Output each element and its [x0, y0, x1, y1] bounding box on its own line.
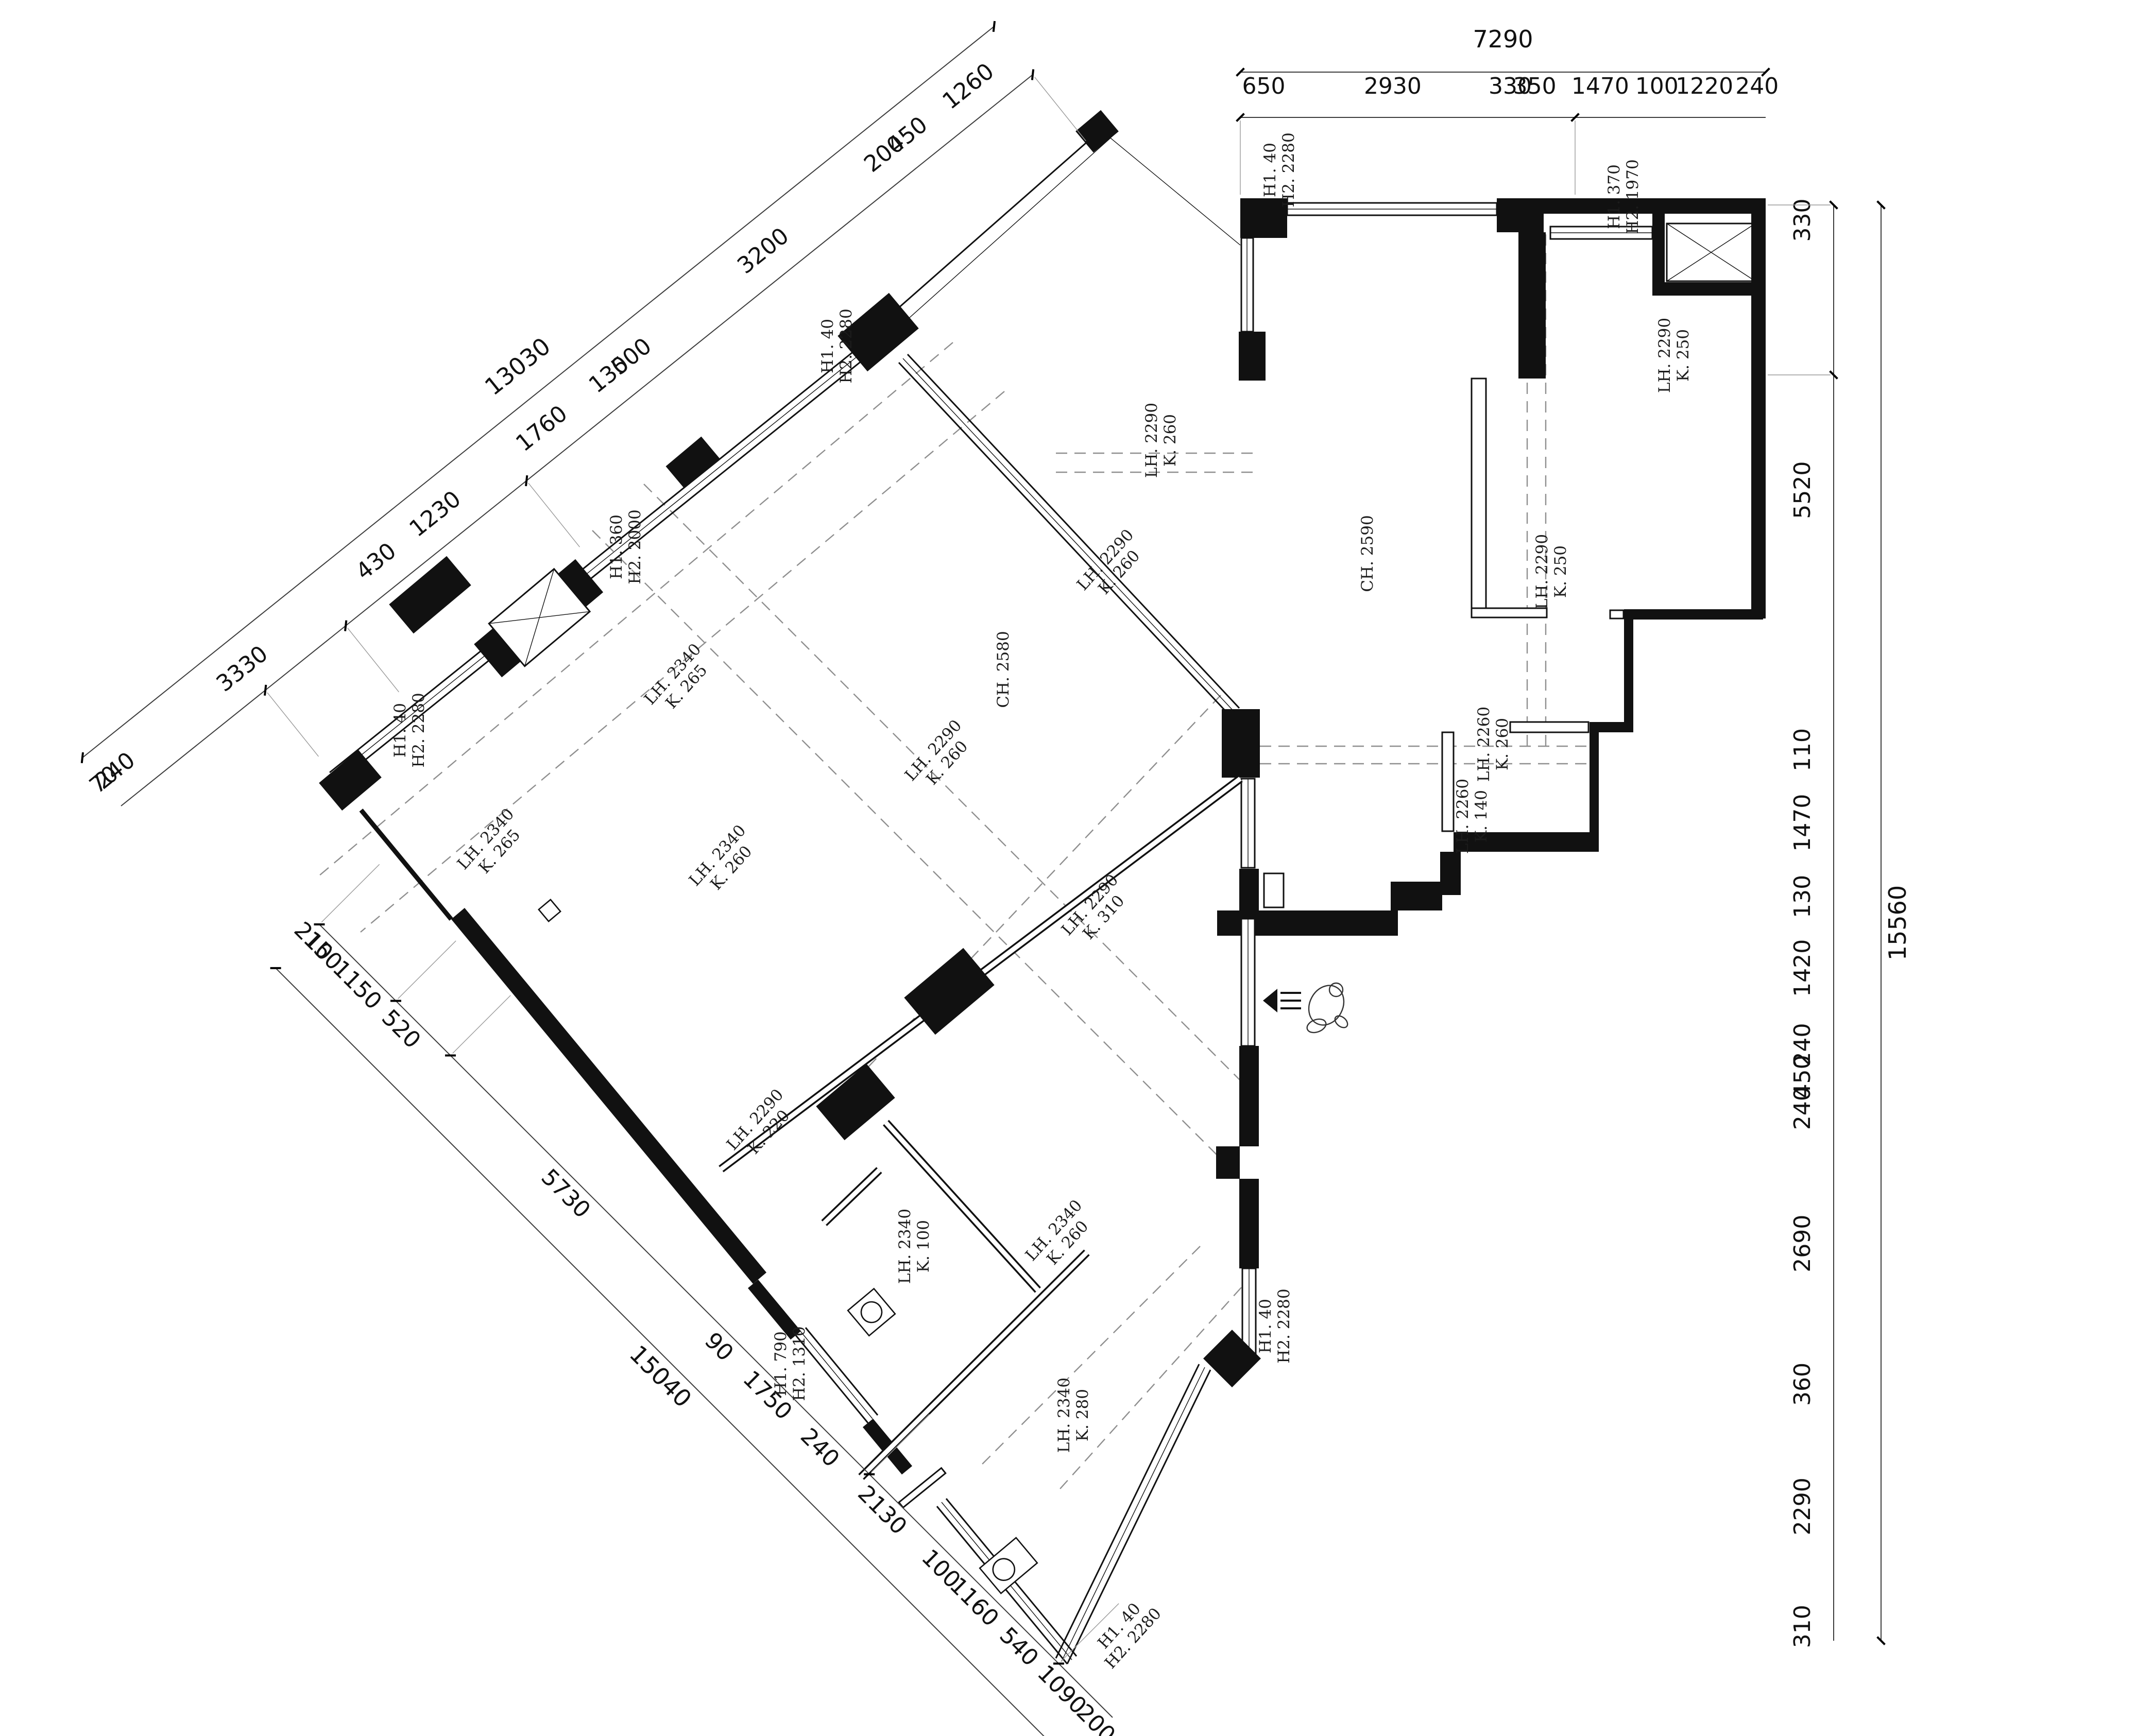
svg-text:H1. 790: H1. 790 — [772, 1331, 790, 1396]
wc-fixture-icon — [848, 1288, 895, 1335]
bath-left-partition — [1442, 732, 1454, 831]
svg-text:H1. 370: H1. 370 — [1605, 164, 1624, 229]
label-nw-elevator-window: H1. 360H2. 2000 — [607, 509, 644, 584]
label-room-e-upper: LH. 2290K. 250 — [1655, 318, 1693, 393]
svg-text:H2. 1970: H2. 1970 — [1624, 159, 1642, 234]
ne-facade-window-wall — [899, 354, 1239, 716]
west-corner-column — [319, 750, 382, 811]
dim-extension-line — [398, 941, 456, 999]
partition-vertical — [1472, 379, 1486, 608]
svg-text:LH. 2340: LH. 2340 — [1055, 1378, 1073, 1453]
dimension-value: 240 — [1789, 1087, 1816, 1130]
label-se-window: H1. 40H2. 2280 — [1087, 1592, 1165, 1672]
dimension-overall-value: 15560 — [1884, 885, 1911, 960]
svg-text:LH. 2290: LH. 2290 — [1142, 403, 1161, 478]
svg-text:H2. 2280: H2. 2280 — [1275, 1288, 1293, 1363]
step-wall-a — [1440, 852, 1461, 895]
svg-text:H2. 2280: H2. 2280 — [409, 693, 428, 767]
svg-text:K. 260: K. 260 — [1161, 414, 1180, 467]
right-outer-wall — [1751, 214, 1766, 618]
dimension-value: 360 — [1789, 1363, 1816, 1406]
dim-extension-line — [528, 483, 579, 547]
entry-symbol — [1263, 979, 1351, 1035]
dimension-value: 2930 — [1364, 73, 1422, 99]
svg-text:K. 250: K. 250 — [1674, 329, 1693, 382]
room-e-bottom-wall — [1624, 609, 1763, 620]
svg-text:H1. 40: H1. 40 — [1261, 143, 1279, 197]
bath-jog-wall — [1590, 722, 1633, 732]
entry-wall-a — [1239, 869, 1259, 918]
dim-extension-line — [267, 693, 318, 757]
dim-tick — [1032, 70, 1033, 80]
svg-text:H1. 40: H1. 40 — [391, 703, 409, 758]
bath-right-wall-lower — [1590, 732, 1599, 835]
svg-text:H2. 1310: H2. 1310 — [790, 1326, 809, 1401]
label-nw-facade-window: H1. 40H2. 2280 — [391, 693, 428, 767]
svg-text:K. 140: K. 140 — [1472, 790, 1491, 843]
dimension-overall-value: 15040 — [624, 1340, 697, 1413]
dim-chain-sw: 2101501150520573090175024021301001160540… — [270, 864, 2153, 1736]
label-great-room: CH. 2580 — [994, 631, 1013, 708]
dim-chain-nw: 1260450200320050013017601230430333024070… — [0, 21, 1086, 1736]
nw-facade-column — [389, 556, 471, 634]
svg-text:H1. 360: H1. 360 — [607, 514, 626, 579]
dim-tick — [526, 475, 527, 486]
dim-extension-line — [348, 628, 399, 692]
dim-chain-top: 6502930330350147010012202407290 — [1237, 25, 2153, 195]
step-wall-c — [1341, 910, 1398, 936]
dimension-value: 3330 — [212, 641, 273, 697]
nw-elevator — [470, 555, 607, 682]
dim-overall-line — [276, 968, 1069, 1736]
svg-text:LH. 2290: LH. 2290 — [1533, 534, 1551, 609]
label-beam-west: LH. 2340K. 265 — [454, 805, 532, 886]
svg-text:H2. 2280: H2. 2280 — [837, 308, 856, 383]
dimension-value: 430 — [351, 538, 401, 585]
dimension-value: 2690 — [1789, 1215, 1816, 1273]
svg-text:K. 260: K. 260 — [1493, 718, 1512, 770]
divider-wall — [1518, 232, 1546, 379]
dimension-chains: 6502930330350147010012202407290 33055201… — [0, 21, 2153, 1736]
svg-text:K. 100: K. 100 — [914, 1220, 933, 1273]
dimension-value: 90 — [699, 1328, 739, 1367]
svg-text:CH. 2590: CH. 2590 — [1358, 515, 1377, 592]
interior-column-b — [816, 1064, 895, 1140]
dimension-overall-value: 13030 — [480, 332, 556, 401]
dim-extension-line — [1035, 77, 1086, 141]
bath-right-wall — [1624, 620, 1633, 732]
dimension-value: 650 — [1242, 73, 1285, 99]
dim-tick — [82, 752, 83, 763]
bath-top-partition — [1510, 722, 1588, 732]
dim-tick — [345, 621, 346, 631]
wall-fixture — [539, 900, 560, 921]
label-beam-center-b: LH. 2290K. 260 — [901, 716, 979, 797]
svg-text:LH. 2290: LH. 2290 — [1655, 318, 1674, 393]
left-wall-column — [1239, 332, 1266, 381]
dimension-value: 2290 — [1789, 1477, 1816, 1535]
entry-wall-c — [1239, 1179, 1259, 1268]
sw-thick-wall — [451, 908, 766, 1284]
step-wall-b — [1391, 882, 1442, 910]
label-beam-center-a: LH. 2290K. 260 — [1073, 526, 1151, 607]
entry-column — [1222, 709, 1260, 778]
dimension-value: 240 — [1735, 73, 1779, 99]
dim-tick — [265, 685, 266, 696]
svg-text:LH. 2260: LH. 2260 — [1475, 707, 1493, 782]
dimension-value: 240 — [795, 1423, 844, 1472]
floor-plan-canvas: 6502930330350147010012202407290 33055201… — [0, 0, 2153, 1736]
top-column — [1497, 198, 1544, 232]
dimension-overall-value: 7290 — [1473, 25, 1533, 53]
dimension-value: 1260 — [937, 58, 999, 115]
label-top-window: H1. 40H2. 2280 — [1261, 132, 1298, 207]
svg-text:H2. 2000: H2. 2000 — [626, 509, 644, 584]
door-leaf — [1264, 873, 1284, 907]
label-hallway: LH. 2260K. 260 — [1475, 707, 1512, 782]
svg-text:K. 250: K. 250 — [1551, 545, 1570, 598]
label-hall-junction: LH. 2290K. 260 — [1142, 403, 1180, 478]
label-bathroom: LH. 2260K. 140 — [1454, 779, 1491, 854]
dimension-value: 350 — [1513, 73, 1557, 99]
corridor-bottom-wall — [1217, 910, 1341, 936]
dim-segment-line — [121, 75, 1033, 806]
pilaster — [1216, 1146, 1240, 1179]
top-wall — [1544, 198, 1766, 214]
dimension-value: 2130 — [852, 1481, 912, 1540]
wall-labels: H1. 40H2. 2280 H1. 370H2. 1970 CH. 2590 … — [391, 132, 1693, 1672]
dimension-value: 5520 — [1789, 461, 1816, 519]
dim-chain-right: 3305520110147013014202404502402690360229… — [1768, 199, 1911, 1736]
door-leaf — [899, 1468, 946, 1508]
elevator-bottom-wall — [1652, 282, 1766, 296]
beam-dashed-lines — [319, 234, 1590, 1493]
svg-text:H2. 2280: H2. 2280 — [1279, 132, 1298, 207]
dimension-value: 1760 — [511, 400, 572, 457]
dimension-value: 5730 — [536, 1164, 595, 1223]
label-entry-window: H1. 40H2. 2280 — [1256, 1288, 1293, 1363]
dimension-value: 310 — [1789, 1605, 1816, 1648]
dim-tick — [994, 21, 995, 32]
label-wc: LH. 2340K. 100 — [896, 1209, 933, 1284]
label-niche-window: H1. 370H2. 1970 — [1605, 159, 1642, 234]
dimension-value: 520 — [377, 1005, 425, 1054]
elevator-wall — [1652, 214, 1665, 290]
label-sw-opening: H1. 790H2. 1310 — [772, 1326, 809, 1401]
svg-text:CH. 2580: CH. 2580 — [994, 631, 1013, 708]
svg-text:K. 280: K. 280 — [1073, 1389, 1092, 1441]
dimension-value: 130 — [1789, 875, 1816, 918]
dimension-value: 1470 — [1571, 73, 1629, 99]
elevator-shaft-icon — [1667, 224, 1755, 281]
label-room-ne: CH. 2590 — [1358, 515, 1377, 592]
svg-text:H1. 40: H1. 40 — [818, 319, 837, 373]
dimension-value: 1230 — [404, 486, 466, 542]
floor-plan-page: 6502930330350147010012202407290 33055201… — [0, 0, 2153, 1736]
dimension-value: 1470 — [1789, 794, 1816, 852]
dim-extension-line — [321, 864, 379, 922]
person-figure-icon — [1302, 979, 1351, 1035]
label-ne-facade-window: H1. 40H2. 2280 — [818, 308, 856, 383]
dim-segment-line — [319, 924, 1113, 1717]
label-beam-nw-a: LH. 2340K. 265 — [641, 640, 719, 721]
svg-text:LH. 2260: LH. 2260 — [1454, 779, 1472, 854]
label-room-s2: LH. 2340K. 260 — [1022, 1196, 1100, 1277]
dimension-value: 100 — [1635, 73, 1679, 99]
dim-extension-line — [453, 995, 510, 1053]
dimension-value: 540 — [994, 1622, 1043, 1671]
label-room-s: LH. 2340K. 280 — [1055, 1378, 1092, 1453]
label-beam-nw-b: LH. 2340K. 260 — [686, 821, 763, 902]
entry-wall-b — [1239, 1046, 1259, 1146]
door-frame — [1610, 610, 1624, 618]
dimension-value: 3200 — [732, 222, 794, 279]
svg-text:H1. 40: H1. 40 — [1256, 1299, 1275, 1353]
svg-text:LH. 2340: LH. 2340 — [896, 1209, 914, 1284]
dimension-value: 1220 — [1676, 73, 1733, 99]
label-room-e-lower: LH. 2290K. 250 — [1533, 534, 1570, 609]
dimension-value: 1420 — [1789, 939, 1816, 997]
sw-facade — [361, 810, 1076, 1664]
entry-arrow-icon — [1263, 989, 1277, 1012]
wc-fixture-icon — [980, 1538, 1037, 1593]
dimension-value: 110 — [1789, 728, 1816, 771]
